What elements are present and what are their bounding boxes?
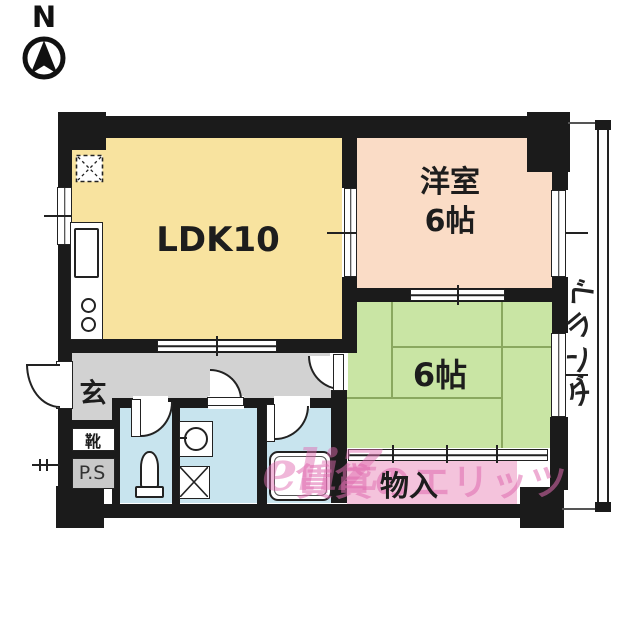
tatami-room-label: 6帖 [413, 350, 467, 396]
toilet-base [135, 486, 164, 498]
toilet-icon [140, 451, 159, 489]
compass: N [20, 2, 68, 88]
door-tick [446, 445, 448, 463]
pipe-hatch-icon [46, 459, 48, 471]
compass-icon [20, 34, 68, 82]
shoe-label: 靴 [85, 428, 101, 452]
wall-shoe-top [72, 420, 117, 428]
bathtub-icon [269, 451, 332, 501]
wall-divider [342, 138, 357, 188]
pipe-space-label: P.S [79, 462, 106, 484]
tatami-seam [391, 346, 552, 348]
stove-burner-icon [81, 298, 96, 313]
washing-machine-icon [179, 466, 210, 499]
compass-north-label: N [20, 2, 68, 34]
door-tick [216, 336, 218, 356]
wall-divider [342, 277, 357, 339]
pipe-hatch-icon [39, 459, 41, 471]
window-western [551, 190, 566, 277]
wall-top [60, 116, 530, 138]
door-tick [392, 445, 394, 463]
wall-divider-lower [331, 390, 347, 503]
pillar-top-right [527, 112, 570, 172]
railing-end [595, 120, 611, 130]
wall-right [550, 417, 568, 490]
storage-label: 物入 [380, 463, 438, 505]
wash-basin-icon [184, 427, 208, 451]
toilet-door-leaf [131, 399, 141, 437]
kitchen-sink [74, 228, 99, 278]
door-tick [496, 445, 498, 463]
wall-bottom [60, 504, 564, 518]
stove-burner-icon [81, 317, 96, 332]
tatami-seam [391, 302, 393, 398]
ldk-label: LDK10 [156, 220, 280, 260]
tatami-seam [501, 302, 503, 448]
closet-sliding-door [348, 449, 548, 461]
railing-end [595, 502, 611, 512]
vent-fan-icon [75, 154, 104, 183]
western-room-label: 洋室 6帖 [420, 163, 480, 241]
veranda-label: ベ ラ ン ダ [563, 278, 599, 410]
tatami-door-leaf [333, 354, 344, 391]
tatami-seam [346, 397, 503, 399]
entrance-door-arc [26, 364, 60, 408]
floor-plan: ベ ラ ン ダ LDK10 洋室 6帖 6帖 物入 玄 靴 P.S N eliƵ… [0, 0, 640, 640]
veranda-edge [568, 122, 598, 124]
entrance-label: 玄 [80, 372, 107, 411]
door-tick [457, 285, 459, 305]
window-tick [44, 215, 72, 217]
wall-left [58, 116, 72, 187]
window-tick [566, 232, 588, 234]
washroom-door-leaf [207, 397, 244, 406]
wall-right [552, 172, 568, 190]
faucet-icon [180, 437, 187, 439]
window-tick [327, 232, 357, 234]
bath-door-leaf [266, 404, 275, 442]
